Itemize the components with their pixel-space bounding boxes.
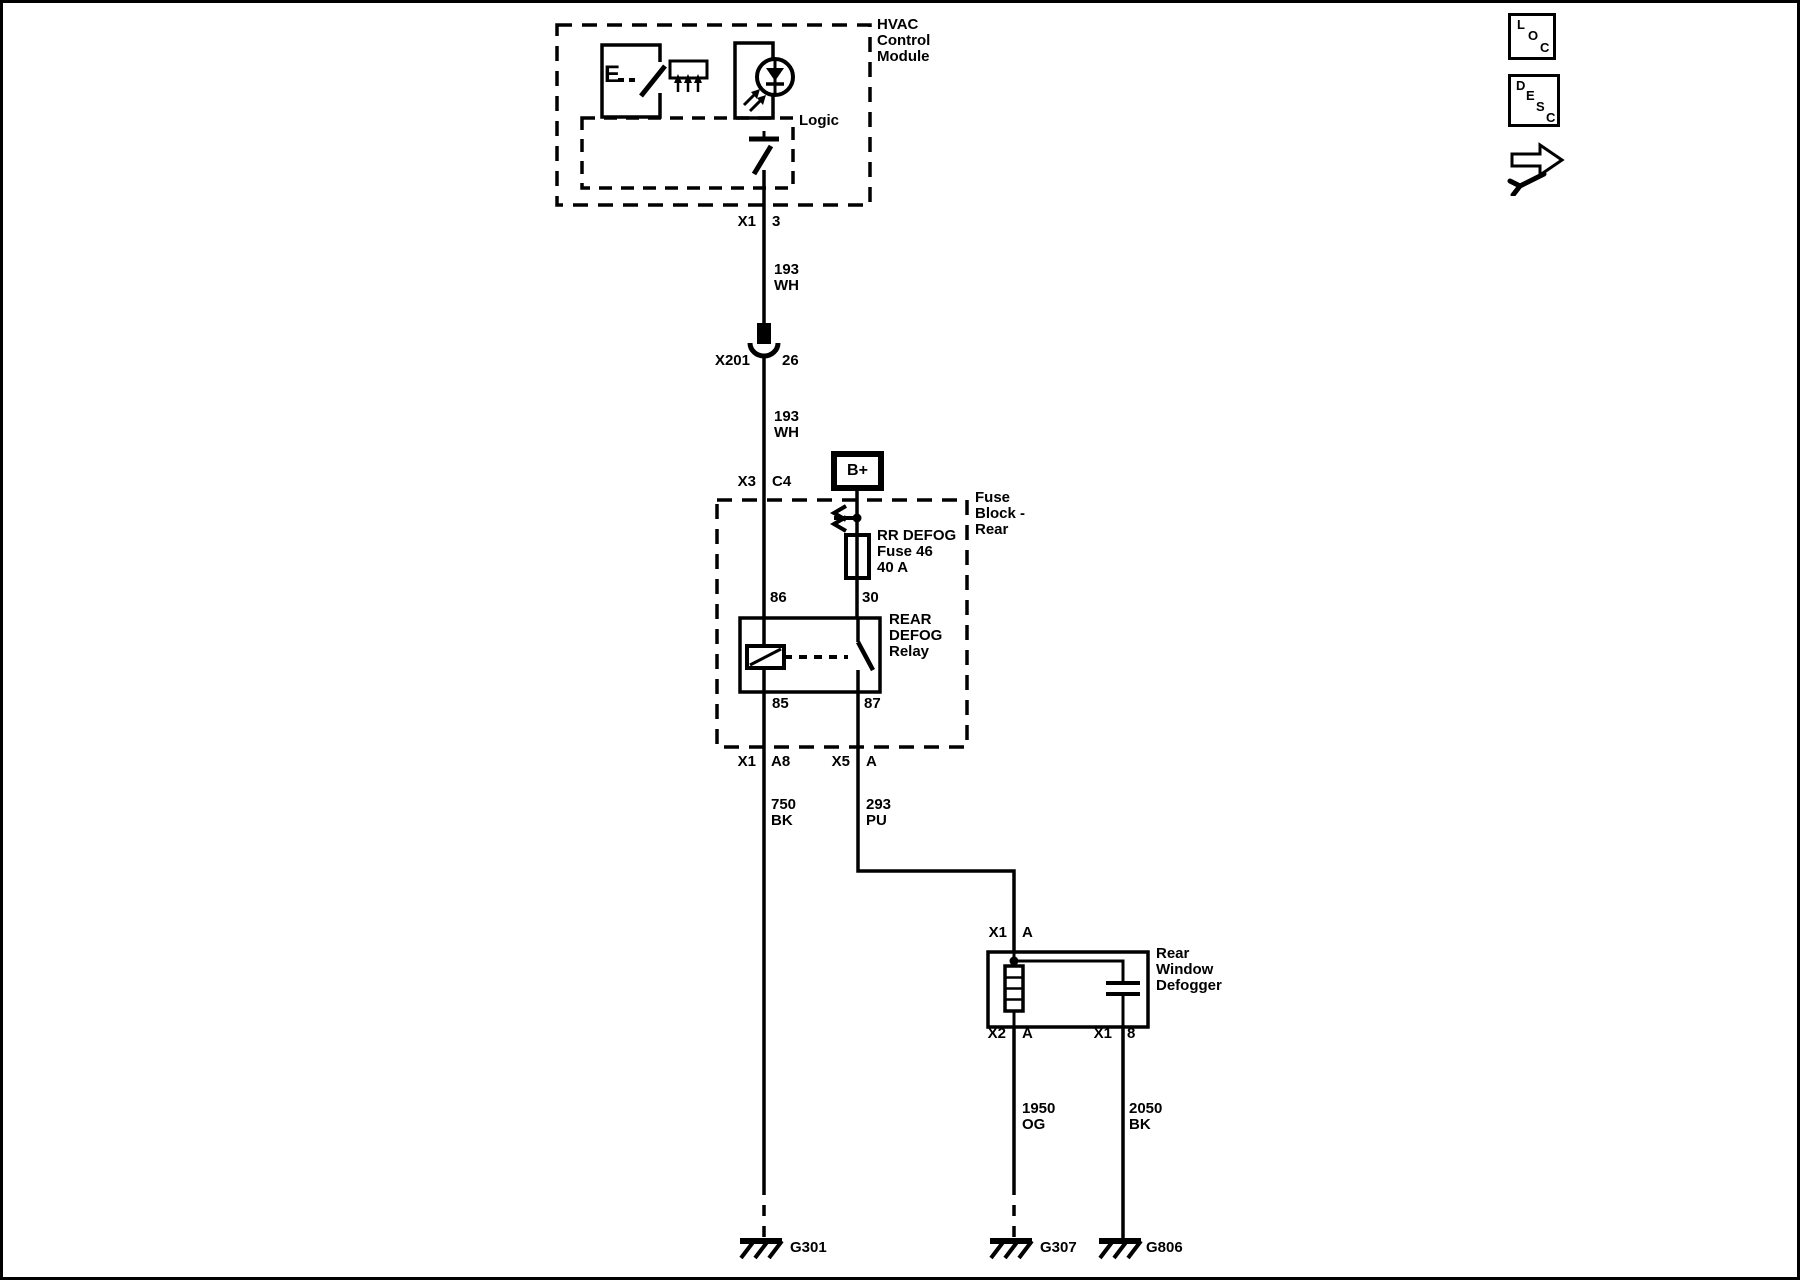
connector-x201-name: X201 xyxy=(715,353,750,369)
connector-x3-c4-name: X3 xyxy=(738,474,756,490)
connector-x1-8-pin: 8 xyxy=(1127,1026,1135,1042)
arrow-shape xyxy=(1512,145,1562,175)
relay-label: REAR DEFOG Relay xyxy=(889,612,942,660)
connector-x1-a8-name: X1 xyxy=(738,754,756,770)
fuse-label: RR DEFOG Fuse 46 40 A xyxy=(877,528,956,576)
ground-g806-label: G806 xyxy=(1146,1240,1183,1256)
loc-letter-c: C xyxy=(1540,41,1549,54)
capacitor-symbol xyxy=(1106,983,1140,994)
connector-x1-a8-pin: A8 xyxy=(771,754,790,770)
desc-letter-e: E xyxy=(1526,89,1535,102)
connector-x1-3-name: X1 xyxy=(738,214,756,230)
wrench-shape xyxy=(1510,174,1544,195)
ground-symbol-g301 xyxy=(740,1241,782,1258)
desc-button[interactable]: D E S C xyxy=(1508,74,1560,127)
bplus-power-label: B+ xyxy=(831,451,884,491)
loc-button[interactable]: L O C xyxy=(1508,13,1556,60)
connector-x5-a-pin: A xyxy=(866,754,877,770)
connector-x2-a-name: X2 xyxy=(988,1026,1006,1042)
connector-x3-c4-pin: C4 xyxy=(772,474,791,490)
ground-g307-label: G307 xyxy=(1040,1240,1077,1256)
inline-connector-x201-symbol xyxy=(750,323,778,356)
connector-x1-a-defogger-name: X1 xyxy=(989,925,1007,941)
ground-symbol-g307 xyxy=(990,1241,1032,1258)
relay-pin-85: 85 xyxy=(772,696,789,712)
wiring-diagram-page: HVAC Control Module Logic E X1 3 193 WH … xyxy=(0,0,1800,1280)
switch-letter-label: E xyxy=(604,62,620,88)
hvac-module-label: HVAC Control Module xyxy=(877,17,930,65)
wire-193-lower-label: 193 WH xyxy=(774,409,799,441)
connector-x2-a-pin: A xyxy=(1022,1026,1033,1042)
desc-letter-s: S xyxy=(1536,100,1545,113)
connector-x1-a-defogger-pin: A xyxy=(1022,925,1033,941)
defogger-label: Rear Window Defogger xyxy=(1156,946,1222,994)
connector-x5-a-name: X5 xyxy=(832,754,850,770)
connector-x1-8-name: X1 xyxy=(1094,1026,1112,1042)
heater-element-symbol xyxy=(1005,966,1023,1011)
fuse-block-label: Fuse Block - Rear xyxy=(975,490,1025,538)
wire-2050-label: 2050 BK xyxy=(1129,1101,1162,1133)
desc-letter-c: C xyxy=(1546,111,1555,124)
logic-label: Logic xyxy=(799,113,839,129)
wire-193-upper-label: 193 WH xyxy=(774,262,799,294)
repair-arrow-wrench-icon[interactable] xyxy=(1504,140,1572,196)
ground-g301-label: G301 xyxy=(790,1240,827,1256)
relay-symbol xyxy=(740,618,880,692)
defogger-component xyxy=(988,952,1148,1027)
connector-x201-pin: 26 xyxy=(782,353,799,369)
wire-1950-label: 1950 OG xyxy=(1022,1101,1055,1133)
ground-symbol-g806 xyxy=(1099,1241,1141,1258)
defog-indicator-icon xyxy=(670,61,707,92)
wire-293-label: 293 PU xyxy=(866,797,891,829)
loc-letter-l: L xyxy=(1517,18,1525,31)
driver-transistor-symbol xyxy=(749,131,779,174)
relay-pin-86: 86 xyxy=(770,590,787,606)
led-indicator-symbol xyxy=(735,43,793,118)
wire-750-label: 750 BK xyxy=(771,797,796,829)
relay-pin-30: 30 xyxy=(862,590,879,606)
logic-box xyxy=(582,118,793,188)
desc-letter-d: D xyxy=(1516,79,1525,92)
loc-letter-o: O xyxy=(1528,29,1538,42)
connector-x1-3-pin: 3 xyxy=(772,214,780,230)
relay-pin-87: 87 xyxy=(864,696,881,712)
